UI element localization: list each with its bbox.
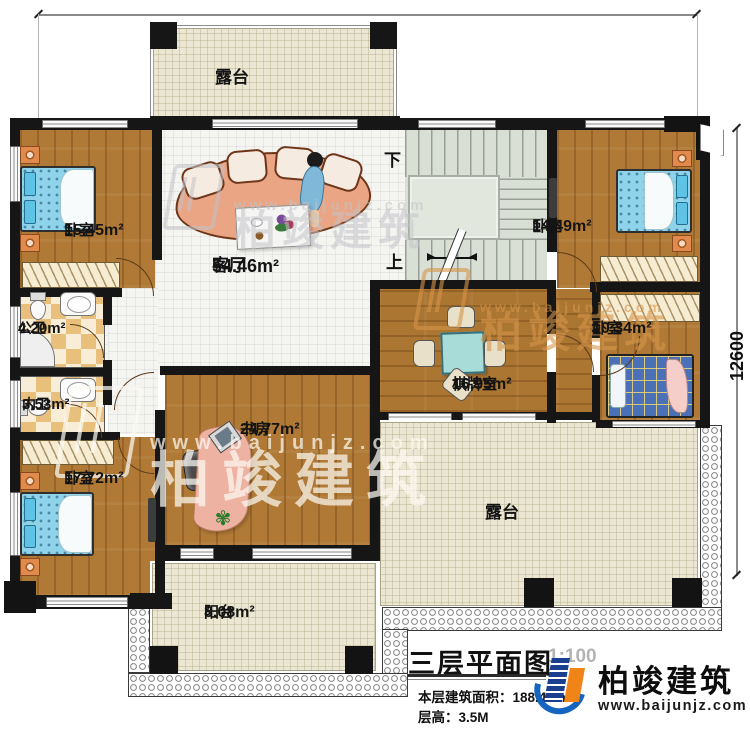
stair-landing (408, 175, 500, 240)
nightstand (20, 472, 40, 490)
pillow (676, 202, 688, 225)
brand-name: 柏竣建筑 (598, 656, 734, 701)
column (672, 578, 702, 607)
chair (447, 306, 475, 328)
window (388, 413, 452, 420)
dish (251, 218, 263, 228)
room-area: 54.46m² (212, 256, 279, 277)
plant: ✾ (212, 508, 234, 530)
column (370, 22, 397, 49)
wardrobe (600, 294, 700, 322)
dimension-value-12600: 12600 (727, 306, 749, 406)
wall-segment (547, 372, 556, 423)
dimension-extension (697, 14, 698, 126)
dimension-extension (38, 14, 39, 124)
room-name: 露台 (215, 68, 249, 88)
dimension-tick (732, 570, 741, 579)
blanket (58, 495, 92, 553)
wardrobe (22, 262, 120, 288)
stair-arrow (427, 253, 435, 261)
window (585, 120, 665, 128)
nightstand (20, 234, 40, 252)
bay-window (700, 124, 724, 156)
window (10, 492, 20, 556)
window (252, 548, 352, 559)
brand-url: www.baijunjz.com (598, 698, 747, 714)
room-area: 4.20m² (18, 320, 66, 338)
room-area: 10.34m² (592, 320, 652, 339)
wardrobe (600, 256, 698, 282)
column (345, 646, 373, 674)
brand-logo: 柏竣建筑 www.baijunjz.com (534, 654, 744, 722)
dimension-line-top (38, 14, 697, 16)
pillow (24, 525, 36, 548)
room-area: 24.77m² (240, 421, 300, 440)
sink-basin (67, 296, 91, 313)
blanket (666, 359, 688, 413)
window (612, 421, 696, 427)
room-area: 3.53m² (22, 396, 70, 414)
flower-leaves (275, 223, 289, 232)
wall-segment (700, 118, 710, 428)
nightstand (672, 150, 692, 167)
title-underline (408, 679, 546, 680)
person-legs (310, 210, 319, 227)
staircase (405, 128, 547, 287)
room-area: 14.49m² (532, 218, 592, 237)
pillow (24, 498, 36, 521)
sink-basin (67, 382, 91, 399)
window (10, 146, 20, 202)
sink (60, 292, 96, 316)
sofa-cushion (226, 148, 269, 184)
pillow (24, 200, 36, 224)
chair (484, 340, 506, 367)
blanket (60, 169, 94, 229)
dish (255, 232, 263, 240)
terrace-railing-bottom (382, 607, 722, 631)
coffee-table (235, 204, 311, 250)
stair-label-up: 上 (386, 248, 403, 273)
stair-label-down: 下 (384, 146, 401, 171)
stair-treads-bottom (405, 240, 547, 287)
column (524, 578, 554, 607)
hallway-floor (108, 288, 158, 434)
window (462, 413, 536, 420)
window (212, 119, 358, 128)
wardrobe (22, 440, 114, 465)
stair-arrow (469, 253, 477, 261)
window (180, 548, 214, 559)
pillow (24, 172, 36, 196)
room-name: 露台 (485, 503, 519, 523)
floor-height-text: 层高：3.5M (418, 706, 489, 726)
mahjong-table (440, 331, 485, 375)
chair (413, 340, 435, 367)
title-underline (408, 674, 546, 677)
room-area: 16.95m² (452, 376, 512, 395)
window (46, 597, 128, 607)
nightstand (672, 235, 692, 252)
room-area: 17.72m² (64, 470, 124, 489)
tv (549, 178, 557, 218)
column (150, 22, 177, 49)
laptop-screen (214, 427, 235, 448)
wall-segment (592, 375, 600, 422)
pillow (676, 175, 688, 198)
tv (148, 498, 156, 542)
brand-building-icon (534, 654, 594, 718)
terrace-railing-right (700, 425, 722, 611)
double-bed (612, 150, 694, 252)
wall-segment (547, 288, 556, 334)
window (10, 380, 20, 428)
window (418, 120, 496, 128)
nightstand (20, 558, 40, 576)
balcony-railing-left (128, 607, 150, 673)
window (42, 120, 128, 128)
column (150, 646, 178, 674)
balcony-floor (150, 561, 378, 673)
floor-plan-canvas: 12600 下 上 (0, 0, 750, 729)
terrace-top-floor (150, 25, 397, 125)
balcony-railing-bottom (128, 673, 408, 697)
room-area: 15.45m² (64, 222, 124, 241)
stair-treads-top (405, 128, 547, 177)
room-area: 8.08m² (204, 604, 255, 623)
nightstand (20, 146, 40, 164)
blanket (644, 172, 674, 230)
